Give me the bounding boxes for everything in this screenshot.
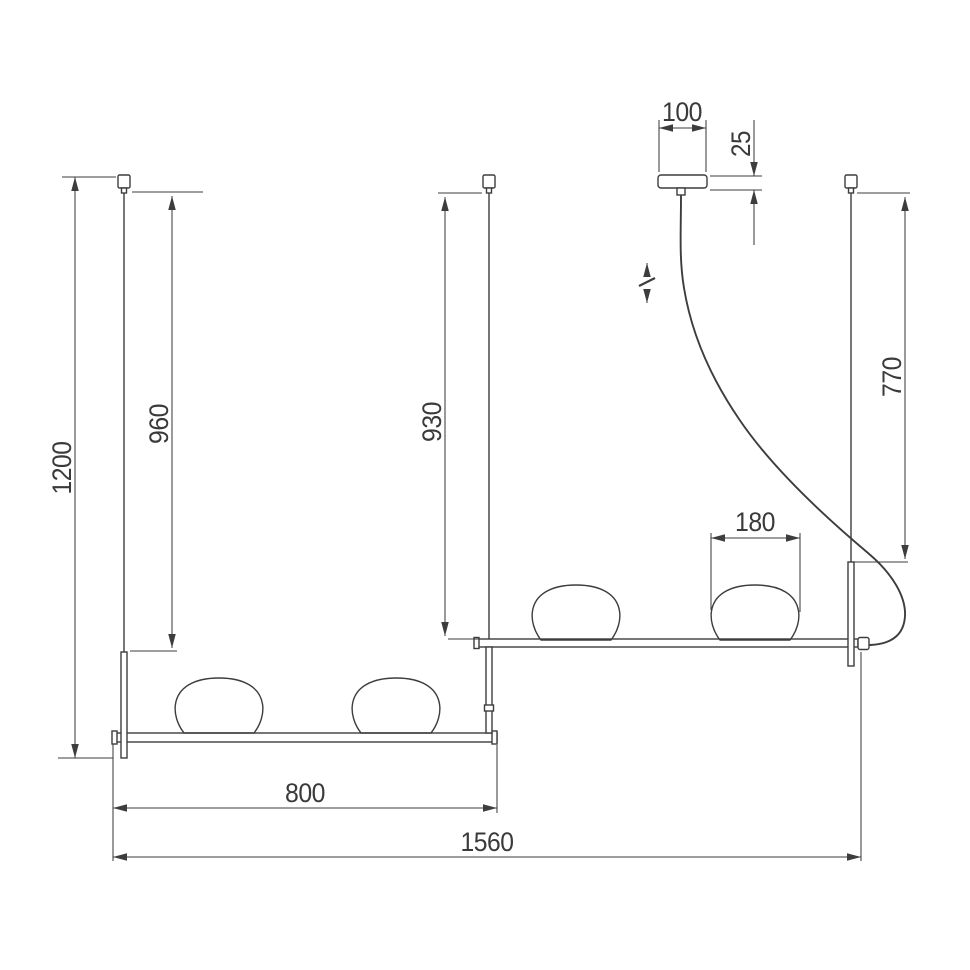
upper-bar [474, 638, 869, 650]
canopy-stem [677, 188, 685, 195]
drawing-canvas: 1200 960 930 770 100 25 [0, 0, 970, 970]
glass-shade [175, 678, 263, 733]
left-suspension-rod [118, 175, 130, 758]
dim-label-overall-width: 1560 [461, 827, 514, 857]
left-rod-lower-section [121, 652, 127, 758]
ceiling-canopy [658, 175, 707, 195]
middle-suspension-rod [483, 175, 495, 733]
adjustable-height-icon [639, 263, 655, 303]
dim-cord-drop: 770 [848, 193, 910, 562]
glass-shade [352, 678, 440, 733]
ceiling-fitting-middle [483, 175, 495, 193]
dim-lower-bar-span: 800 [113, 744, 497, 861]
ceiling-fitting-left [118, 175, 130, 193]
dim-label-lower-bar-span: 800 [285, 778, 325, 808]
dim-label-overall-drop: 1200 [47, 442, 77, 495]
glass-shade [532, 585, 620, 640]
dim-label-canopy-height: 25 [726, 131, 756, 157]
dim-label-shade-width: 180 [735, 507, 775, 537]
dim-label-cord-drop: 770 [877, 357, 907, 397]
dim-label-center-stem: 930 [417, 402, 447, 442]
dim-overall-drop: 1200 [47, 177, 116, 758]
dim-left-stem: 960 [130, 192, 203, 651]
middle-rod-lower-section [486, 647, 492, 733]
lower-bar-right-cap [492, 731, 497, 744]
ceiling-fitting-right [845, 175, 857, 193]
middle-rod-joint [485, 705, 494, 711]
glass-shade [711, 585, 799, 640]
right-rod-lower-section [848, 562, 854, 666]
power-cable [681, 196, 905, 645]
dim-canopy-width: 100 [659, 97, 706, 172]
dim-canopy-height: 25 [710, 120, 762, 245]
lower-bar [112, 731, 497, 744]
lower-bar-left-cap [112, 731, 117, 744]
upper-bar-cable-cap [858, 638, 869, 650]
dim-label-canopy-width: 100 [662, 97, 702, 127]
dimension-drawing: 1200 960 930 770 100 25 [0, 0, 970, 970]
right-suspension-rod [845, 175, 857, 666]
dim-label-left-stem: 960 [144, 404, 174, 444]
dim-center-stem: 930 [417, 193, 482, 639]
